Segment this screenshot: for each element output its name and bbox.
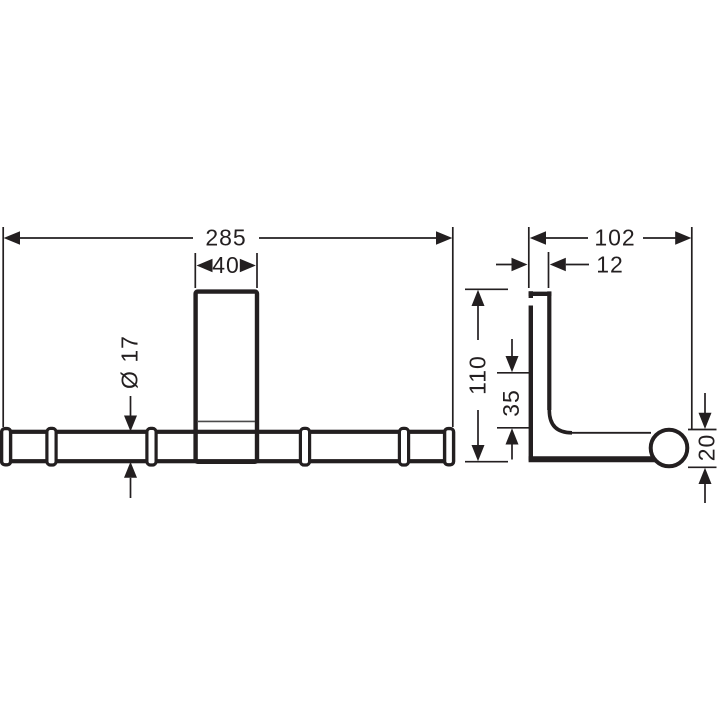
bar-ring-2 [147, 428, 156, 465]
dim-plate-width: 40 [195, 252, 257, 288]
dim-label-overall-depth: 102 [594, 225, 635, 251]
bar-ring-1 [47, 428, 56, 465]
dim-label-end-cap-diameter: 20 [694, 434, 720, 462]
bar-end-cap-left [2, 429, 11, 465]
technical-drawing: 285 40 Ø 17 [0, 0, 720, 720]
dim-label-plate-width: 40 [212, 252, 240, 278]
inner-corner-curve [549, 410, 572, 433]
arrowhead-right [240, 259, 256, 273]
dim-label-overall-width: 285 [205, 225, 246, 251]
dim-bar-offset: 35 [497, 339, 533, 460]
arrowhead-up [124, 462, 137, 478]
arrowhead-right [675, 231, 691, 245]
arrowhead-down [124, 416, 137, 432]
front-view-product [2, 292, 454, 465]
dim-label-bar-diameter: Ø 17 [117, 335, 143, 389]
dim-end-cap-diameter: 20 [688, 393, 720, 503]
dim-label-plate-thickness: 12 [596, 252, 624, 278]
dim-bar-diameter: Ø 17 [117, 335, 143, 498]
front-view: 285 40 Ø 17 [2, 225, 454, 499]
arrowhead-left [530, 231, 546, 245]
arrowhead-left [197, 259, 213, 273]
arrowhead-down [506, 356, 519, 372]
arrowhead-down [472, 445, 485, 461]
arrowhead-down [699, 413, 712, 429]
arrowhead-left [4, 231, 20, 245]
dim-plate-thickness: 12 [496, 252, 624, 289]
bar-end-cap-right [445, 429, 454, 465]
bar-ring-4 [399, 428, 408, 465]
holder-bar [8, 432, 446, 461]
side-view: 102 12 110 35 [465, 225, 720, 504]
dim-overall-height: 110 [465, 289, 509, 461]
arrowhead-up [506, 428, 519, 444]
arrowhead-right [436, 231, 452, 245]
arrowhead-up [472, 290, 485, 306]
arrowhead-left-pointing [550, 258, 566, 272]
side-view-product [529, 291, 688, 466]
drawing-canvas: 285 40 Ø 17 [0, 0, 720, 720]
dim-label-overall-height: 110 [465, 355, 491, 395]
arrowhead-up [699, 468, 712, 484]
bar-ring-3 [300, 428, 309, 465]
bar-end-circle [651, 430, 688, 467]
arrowhead-right-pointing [512, 258, 528, 272]
dim-label-bar-offset: 35 [498, 389, 524, 417]
